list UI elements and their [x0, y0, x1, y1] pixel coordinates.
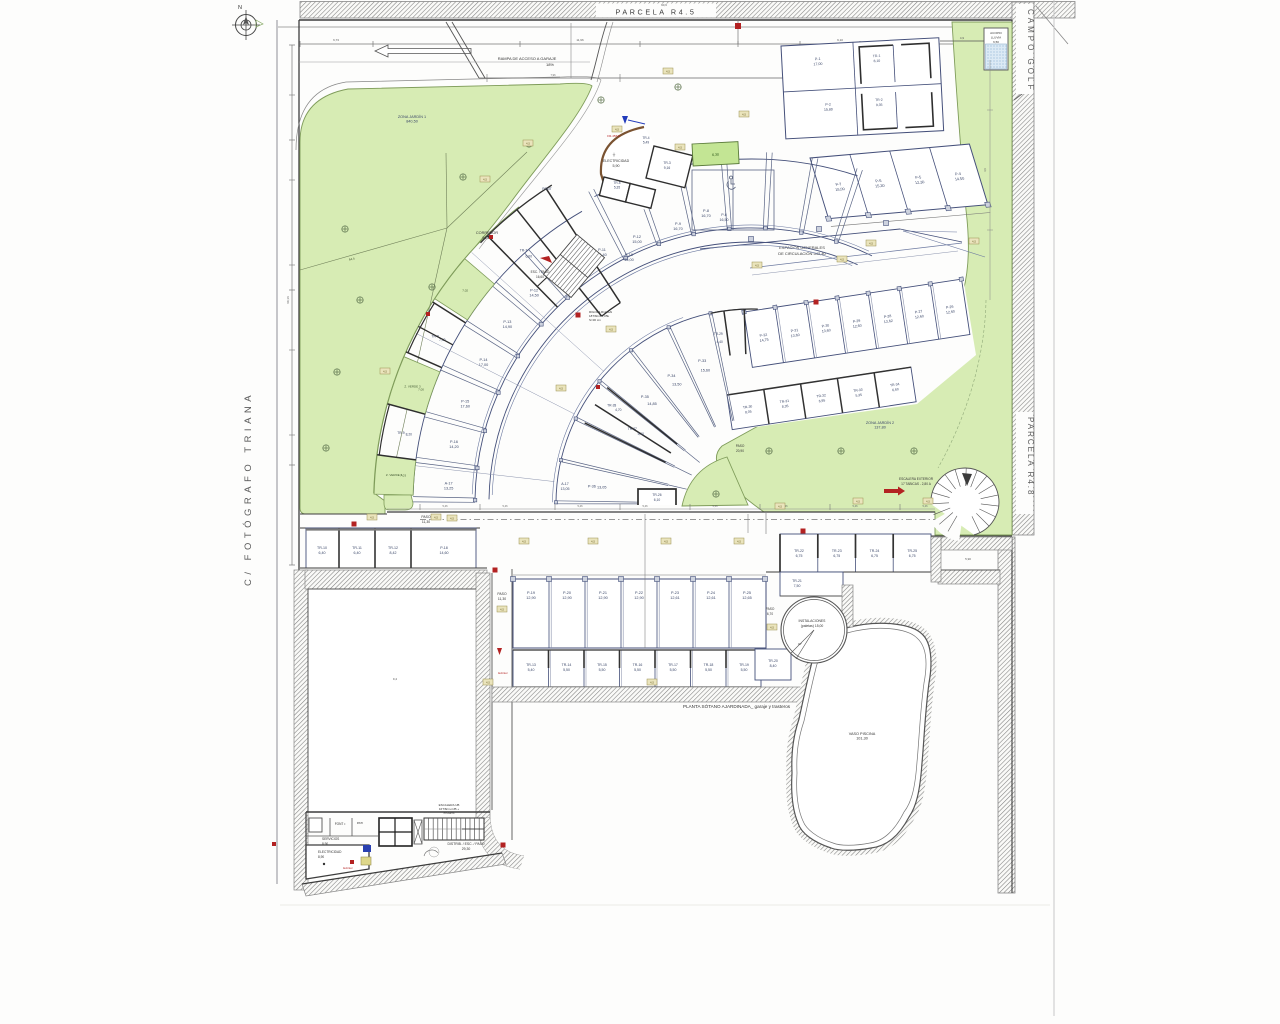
svg-text:5,50: 5,50 [741, 668, 748, 672]
svg-text:(paletas) 15,00: (paletas) 15,00 [801, 624, 824, 628]
svg-text:TR-21: TR-21 [792, 579, 802, 583]
svg-text:FONT •: FONT • [335, 822, 346, 826]
svg-text:29,30: 29,30 [462, 847, 471, 851]
svg-text:8,42: 8,42 [390, 551, 397, 555]
svg-text:12,65: 12,65 [742, 596, 752, 600]
svg-text:9,35: 9,35 [876, 103, 883, 107]
svg-text:TR-22: TR-22 [794, 549, 804, 553]
svg-text:16,70: 16,70 [673, 227, 683, 231]
svg-text:14,20: 14,20 [449, 445, 459, 449]
svg-text:5,50: 5,50 [599, 668, 606, 672]
svg-text:12,90: 12,90 [562, 596, 572, 600]
svg-text:5,50: 5,50 [563, 668, 570, 672]
svg-text:INSTALACIONES: INSTALACIONES [799, 619, 827, 623]
svg-text:P-33: P-33 [698, 359, 706, 363]
svg-text:7,96: 7,96 [550, 73, 556, 77]
svg-text:7,00: 7,00 [418, 387, 424, 391]
svg-text:15,00: 15,00 [632, 240, 642, 244]
svg-text:16,50: 16,50 [720, 218, 729, 222]
svg-text:6,40: 6,40 [354, 551, 361, 555]
svg-text:5,90: 5,90 [965, 557, 971, 561]
svg-text:P-10: P-10 [625, 253, 633, 257]
svg-text:5,49: 5,49 [643, 141, 649, 145]
svg-text:TR-10: TR-10 [317, 546, 327, 550]
svg-text:CORREDOR: CORREDOR [476, 231, 498, 235]
svg-text:TR-2: TR-2 [875, 98, 883, 102]
svg-text:A-17: A-17 [445, 482, 453, 486]
svg-text:4,5: 4,5 [770, 625, 774, 629]
svg-text:4,5: 4,5 [869, 241, 873, 245]
svg-text:4,70: 4,70 [615, 408, 622, 412]
svg-text:ZONA JARDÍN 1: ZONA JARDÍN 1 [398, 115, 426, 119]
svg-text:PARCELA R4.8: PARCELA R4.8 [1026, 417, 1035, 496]
svg-text:P-20: P-20 [563, 591, 571, 595]
svg-text:5,46: 5,46 [712, 504, 718, 508]
svg-text:TR-5: TR-5 [613, 181, 620, 185]
svg-text:TR-24: TR-24 [870, 549, 880, 553]
svg-text:13,05: 13,05 [561, 487, 570, 491]
svg-text:5,90: 5,90 [613, 164, 620, 168]
svg-text:4,5: 4,5 [926, 499, 930, 503]
svg-text:5,46: 5,46 [577, 504, 583, 508]
svg-text:15,00: 15,00 [624, 258, 634, 262]
svg-text:DE CIRCULACIÓN 542,40: DE CIRCULACIÓN 542,40 [778, 251, 826, 256]
svg-text:P-24: P-24 [707, 591, 715, 595]
svg-text:5,35: 5,35 [614, 186, 620, 190]
svg-text:4,40: 4,40 [717, 340, 723, 344]
svg-text:P-11: P-11 [598, 248, 606, 252]
svg-text:P-5: P-5 [915, 175, 922, 179]
svg-text:DISTRIB. / ESC. / PASO: DISTRIB. / ESC. / PASO [447, 842, 484, 846]
svg-text:P-7: P-7 [835, 182, 842, 186]
svg-text:TR-14: TR-14 [562, 663, 572, 667]
svg-text:12,90: 12,90 [634, 596, 644, 600]
svg-text:15,80: 15,80 [824, 107, 833, 111]
svg-text:4,5: 4,5 [450, 516, 454, 520]
svg-text:5,10: 5,10 [638, 432, 645, 436]
svg-text:P-15: P-15 [461, 399, 469, 403]
svg-text:P-8: P-8 [703, 209, 709, 213]
svg-text:13,05: 13,05 [597, 485, 607, 489]
svg-text:PLANTA SÓTANO AJARDINADA_ gara: PLANTA SÓTANO AJARDINADA_ garaje y trast… [683, 703, 791, 709]
svg-text:P-36: P-36 [588, 484, 596, 488]
svg-text:TR-16: TR-16 [633, 663, 643, 667]
svg-text:P-12: P-12 [633, 235, 641, 239]
svg-text:6,50: 6,50 [993, 40, 999, 44]
svg-text:840,50: 840,50 [406, 120, 418, 124]
svg-text:PASO: PASO [736, 444, 745, 448]
svg-text:4,5: 4,5 [666, 69, 670, 73]
svg-text:TR-18: TR-18 [704, 663, 714, 667]
svg-text:17 TABICAS - 2,80 A: 17 TABICAS - 2,80 A [901, 482, 932, 486]
svg-text:S=30 cm: S=30 cm [589, 318, 601, 322]
svg-text:TR-11: TR-11 [352, 546, 362, 550]
svg-text:15,60: 15,60 [701, 369, 711, 373]
svg-text:4,5: 4,5 [737, 539, 741, 543]
svg-text:TR-19: TR-19 [739, 663, 749, 667]
svg-text:P-6: P-6 [875, 179, 882, 183]
svg-text:5,50: 5,50 [634, 668, 641, 672]
svg-text:11,96: 11,96 [576, 38, 584, 42]
svg-text:TR-28: TR-28 [607, 404, 616, 408]
svg-text:9,16: 9,16 [664, 166, 671, 170]
svg-text:TR-20: TR-20 [768, 659, 778, 663]
svg-text:LLUVIA: LLUVIA [991, 36, 1001, 40]
svg-text:ELECTRICIDAD: ELECTRICIDAD [318, 850, 342, 854]
svg-text:4,5: 4,5 [591, 539, 595, 543]
svg-text:P-25: P-25 [743, 591, 751, 595]
svg-text:PASO: PASO [766, 607, 775, 611]
svg-text:P-13: P-13 [503, 320, 511, 324]
svg-text:SERVICIOS: SERVICIOS [322, 837, 339, 841]
svg-text:4,5: 4,5 [615, 127, 619, 131]
svg-text:4,5: 4,5 [609, 327, 613, 331]
svg-text:P-1: P-1 [815, 57, 821, 61]
svg-text:TR-27: TR-27 [628, 427, 637, 431]
svg-text:C/ FOTÓGRAFO TRIANA: C/ FOTÓGRAFO TRIANA [243, 391, 254, 586]
svg-text:P-22: P-22 [635, 591, 643, 595]
svg-text:137,80: 137,80 [874, 426, 886, 430]
svg-text:A-17: A-17 [561, 482, 569, 486]
svg-text:8,20: 8,20 [406, 433, 413, 437]
svg-text:5,46: 5,46 [852, 504, 858, 508]
svg-text:8,90: 8,90 [318, 855, 324, 859]
svg-text:ESCALERA EXTERIOR: ESCALERA EXTERIOR [899, 477, 934, 481]
svg-text:8,10: 8,10 [874, 59, 881, 63]
svg-text:RAMPA DE ACCESO A GARAJE: RAMPA DE ACCESO A GARAJE [498, 56, 557, 61]
svg-text:12,30: 12,30 [914, 180, 925, 185]
svg-text:4,9: 4,9 [983, 168, 987, 172]
svg-text:6,00: 6,00 [525, 254, 532, 258]
svg-text:h=30cm: h=30cm [444, 811, 455, 815]
svg-text:ZONA JARDÍN 2: ZONA JARDÍN 2 [866, 421, 894, 425]
svg-text:4,5: 4,5 [370, 515, 374, 519]
svg-text:4,5: 4,5 [678, 145, 682, 149]
svg-text:7,02: 7,02 [462, 289, 468, 293]
svg-text:4,5: 4,5 [522, 539, 526, 543]
svg-text:5,46: 5,46 [642, 504, 648, 508]
svg-text:Extintor: Extintor [498, 671, 508, 675]
svg-text:P-19: P-19 [527, 591, 535, 595]
svg-text:4,5: 4,5 [483, 177, 487, 181]
svg-text:PASO: PASO [421, 515, 431, 519]
svg-text:5,46: 5,46 [442, 504, 448, 508]
svg-text:6,75: 6,75 [909, 554, 916, 558]
svg-text:Extintor: Extintor [343, 866, 353, 870]
svg-text:P-2: P-2 [825, 102, 831, 106]
svg-text:14,50: 14,50 [529, 293, 539, 297]
svg-text:6,30: 6,30 [712, 153, 719, 157]
svg-text:PATI: PATI [357, 821, 363, 825]
svg-text:ELECTRICIDAD: ELECTRICIDAD [603, 159, 630, 163]
svg-text:TR-17: TR-17 [668, 663, 678, 667]
svg-text:TR-3: TR-3 [663, 161, 670, 165]
svg-text:17,00: 17,00 [813, 62, 822, 66]
svg-text:4,5: 4,5 [526, 141, 530, 145]
svg-text:P-18: P-18 [440, 546, 448, 550]
svg-text:4,5: 4,5 [755, 263, 759, 267]
svg-text:P-14: P-14 [479, 358, 487, 362]
svg-text:4,5: 4,5 [434, 515, 438, 519]
svg-text:FR-4561T: FR-4561T [607, 134, 621, 138]
svg-text:11,30: 11,30 [498, 597, 506, 601]
svg-text:P-21: P-21 [599, 591, 607, 595]
svg-text:6,75: 6,75 [871, 554, 878, 558]
svg-text:6,73: 6,73 [333, 38, 339, 42]
svg-text:101,30: 101,30 [856, 737, 868, 741]
svg-text:4,5: 4,5 [383, 369, 387, 373]
svg-text:7,03: 7,03 [400, 474, 406, 478]
svg-text:13,50: 13,50 [672, 382, 682, 386]
svg-text:16,60: 16,60 [536, 275, 544, 279]
svg-text:14,60: 14,60 [440, 551, 449, 555]
svg-text:⏚: ⏚ [612, 151, 616, 157]
svg-text:TR-13: TR-13 [526, 663, 536, 667]
svg-text:4,5: 4,5 [664, 539, 668, 543]
svg-text:4,5: 4,5 [856, 499, 860, 503]
svg-text:PONT: PONT [542, 187, 551, 191]
svg-text:VASO PISCINA: VASO PISCINA [849, 732, 876, 736]
svg-text:5,46: 5,46 [922, 504, 928, 508]
svg-text:12,90: 12,90 [526, 596, 536, 600]
svg-text:TR-29: TR-29 [714, 332, 723, 336]
svg-text:16,70: 16,70 [701, 214, 711, 218]
svg-text:14,90: 14,90 [503, 325, 513, 329]
svg-text:TR-9: TR-9 [397, 431, 404, 435]
svg-text:7,50: 7,50 [794, 584, 801, 588]
svg-text:17,60: 17,60 [460, 404, 470, 408]
svg-text:12,61: 12,61 [706, 596, 716, 600]
svg-text:TR-25: TR-25 [907, 549, 917, 553]
svg-text:P-23: P-23 [671, 591, 679, 595]
svg-text:9,10: 9,10 [837, 38, 843, 42]
svg-text:12,90: 12,90 [598, 596, 608, 600]
svg-text:TR-15: TR-15 [597, 663, 607, 667]
svg-text:ESC. / PASO: ESC. / PASO [531, 270, 550, 274]
svg-text:13,25: 13,25 [444, 487, 454, 491]
svg-text:60,16: 60,16 [286, 296, 290, 304]
svg-text:45°: 45° [798, 642, 802, 646]
svg-text:60,6: 60,6 [661, 3, 667, 7]
svg-text:15,30: 15,30 [875, 184, 886, 189]
svg-text:P-35: P-35 [641, 395, 649, 399]
svg-text:5,46: 5,46 [502, 504, 508, 508]
svg-text:5,40: 5,40 [528, 668, 535, 672]
svg-text:P-34: P-34 [667, 374, 675, 378]
svg-text:14,50: 14,50 [954, 177, 965, 182]
svg-text:P-12: P-12 [530, 288, 538, 292]
svg-text:4,5: 4,5 [559, 386, 563, 390]
svg-text:18%: 18% [546, 62, 554, 67]
svg-text:18,00: 18,00 [835, 187, 846, 192]
svg-text:4,5: 4,5 [650, 680, 654, 684]
svg-text:4,5: 4,5 [972, 239, 976, 243]
svg-text:TR-1: TR-1 [873, 54, 881, 58]
svg-text:12,61: 12,61 [670, 596, 680, 600]
svg-text:TR-26: TR-26 [652, 493, 661, 497]
svg-text:6,75: 6,75 [796, 554, 803, 558]
svg-text:P-9: P-9 [675, 222, 681, 226]
svg-text:ACOPIO: ACOPIO [990, 31, 1002, 35]
svg-text:TR-12: TR-12 [388, 546, 398, 550]
svg-text:N: N [238, 5, 242, 11]
svg-text:TR-7: TR-7 [520, 248, 528, 252]
svg-text:4,5: 4,5 [742, 112, 746, 116]
svg-text:TR-4: TR-4 [642, 136, 649, 140]
svg-text:TR-23: TR-23 [832, 549, 842, 553]
svg-text:4,5: 4,5 [840, 257, 844, 261]
svg-text:5,50: 5,50 [705, 668, 712, 672]
svg-text:20,90: 20,90 [736, 449, 744, 453]
svg-text:14,85: 14,85 [647, 402, 657, 406]
svg-text:4,5: 4,5 [486, 680, 490, 684]
svg-text:P-6: P-6 [721, 213, 727, 217]
svg-text:6,10: 6,10 [654, 498, 661, 502]
svg-text:6,70: 6,70 [767, 612, 773, 616]
svg-text:P-16: P-16 [450, 440, 458, 444]
svg-text:9,4: 9,4 [393, 677, 398, 681]
svg-text:4,5: 4,5 [778, 504, 782, 508]
svg-text:6,75: 6,75 [833, 554, 840, 558]
svg-text:8,40: 8,40 [770, 664, 777, 668]
svg-text:PARCELA R4.5: PARCELA R4.5 [615, 8, 696, 17]
svg-text:11,30: 11,30 [422, 520, 430, 524]
svg-text:4,5: 4,5 [500, 607, 504, 611]
svg-text:6,40: 6,40 [319, 551, 326, 555]
svg-text:CAMPO GOLF: CAMPO GOLF [1026, 9, 1035, 92]
svg-text:4,9: 4,9 [960, 36, 965, 40]
svg-text:5,50: 5,50 [670, 668, 677, 672]
svg-text:PASO: PASO [497, 592, 507, 596]
